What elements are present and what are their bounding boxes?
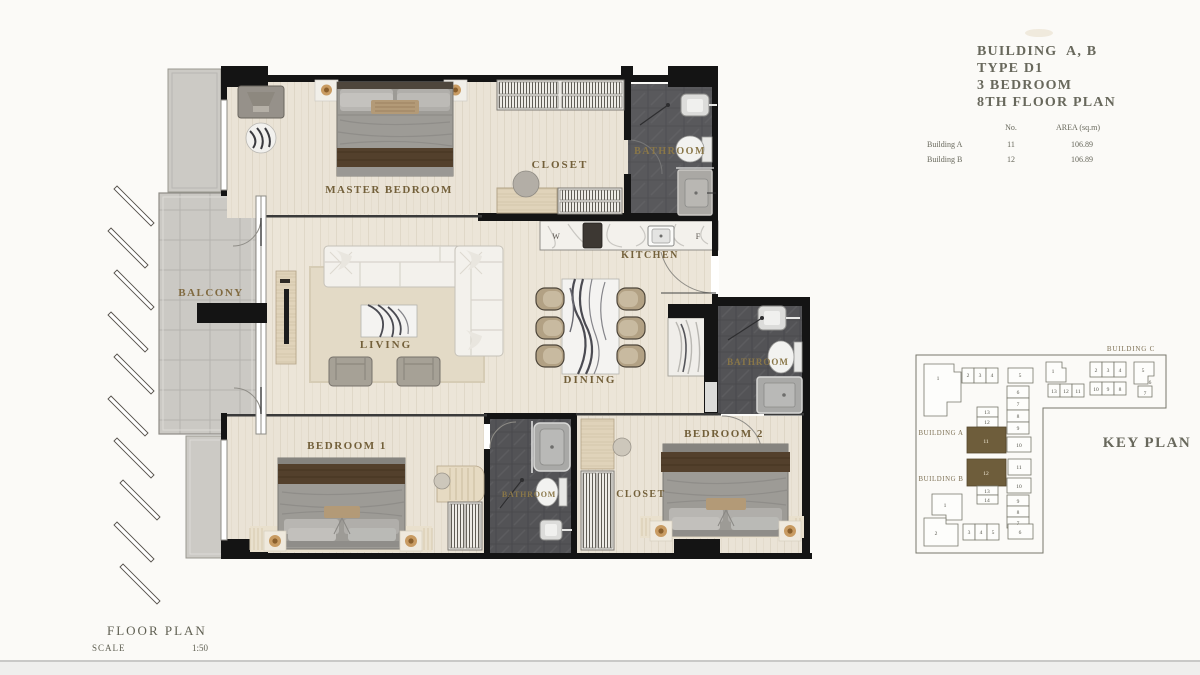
svg-text:CLOSET: CLOSET bbox=[532, 159, 589, 171]
svg-text:BATHROOM: BATHROOM bbox=[502, 490, 556, 499]
svg-text:MASTER BEDROOM: MASTER BEDROOM bbox=[325, 184, 452, 196]
svg-text:12: 12 bbox=[983, 471, 989, 477]
svg-text:TYPE D1: TYPE D1 bbox=[977, 61, 1043, 76]
svg-text:11: 11 bbox=[983, 439, 989, 445]
svg-text:1: 1 bbox=[937, 376, 940, 382]
svg-text:11: 11 bbox=[1007, 140, 1015, 149]
svg-text:6: 6 bbox=[1149, 380, 1152, 386]
svg-text:6: 6 bbox=[1017, 390, 1020, 396]
svg-text:1: 1 bbox=[1052, 369, 1055, 375]
svg-text:12: 12 bbox=[1007, 155, 1015, 164]
svg-text:14: 14 bbox=[984, 498, 990, 504]
svg-text:13: 13 bbox=[1051, 389, 1057, 395]
svg-text:F: F bbox=[696, 232, 701, 241]
svg-text:2: 2 bbox=[935, 531, 938, 537]
svg-text:7: 7 bbox=[1144, 391, 1147, 397]
svg-text:9: 9 bbox=[1107, 387, 1110, 393]
svg-text:7: 7 bbox=[1017, 402, 1020, 408]
svg-text:8: 8 bbox=[1017, 510, 1020, 516]
svg-text:BUILDING A, B: BUILDING A, B bbox=[977, 44, 1097, 59]
svg-text:BATHROOM: BATHROOM bbox=[634, 146, 706, 157]
svg-text:12: 12 bbox=[1063, 389, 1069, 395]
svg-text:11: 11 bbox=[1016, 465, 1022, 471]
svg-text:W: W bbox=[552, 232, 560, 241]
svg-text:2: 2 bbox=[967, 373, 970, 379]
svg-text:3: 3 bbox=[968, 530, 971, 536]
svg-text:Building B: Building B bbox=[927, 155, 962, 164]
svg-text:11: 11 bbox=[1075, 389, 1081, 395]
svg-text:106.89: 106.89 bbox=[1071, 140, 1093, 149]
svg-text:1:50: 1:50 bbox=[192, 643, 209, 653]
svg-text:BUILDING C: BUILDING C bbox=[1107, 345, 1155, 353]
svg-text:9: 9 bbox=[1017, 426, 1020, 432]
svg-text:3: 3 bbox=[1107, 368, 1110, 374]
svg-text:9: 9 bbox=[1017, 499, 1020, 505]
svg-text:13: 13 bbox=[984, 410, 990, 416]
svg-text:DINING: DINING bbox=[564, 374, 617, 386]
svg-text:BEDROOM 2: BEDROOM 2 bbox=[684, 428, 764, 440]
svg-text:No.: No. bbox=[1005, 123, 1017, 132]
svg-text:13: 13 bbox=[984, 489, 990, 495]
svg-text:10: 10 bbox=[1016, 443, 1022, 449]
svg-text:KEY PLAN: KEY PLAN bbox=[1103, 435, 1192, 451]
svg-text:AREA (sq.m): AREA (sq.m) bbox=[1056, 123, 1100, 132]
svg-text:4: 4 bbox=[991, 373, 994, 379]
svg-text:BALCONY: BALCONY bbox=[178, 287, 244, 299]
svg-text:8TH FLOOR PLAN: 8TH FLOOR PLAN bbox=[977, 95, 1116, 110]
svg-text:BUILDING A: BUILDING A bbox=[918, 430, 963, 437]
svg-text:12: 12 bbox=[984, 420, 990, 426]
svg-text:2: 2 bbox=[1095, 368, 1098, 374]
svg-text:7: 7 bbox=[1017, 521, 1020, 527]
svg-text:LIVING: LIVING bbox=[360, 339, 412, 351]
svg-text:5: 5 bbox=[992, 530, 995, 536]
svg-text:SCALE: SCALE bbox=[92, 643, 126, 653]
svg-text:BEDROOM 1: BEDROOM 1 bbox=[307, 440, 387, 452]
svg-text:1: 1 bbox=[944, 503, 947, 509]
svg-text:10: 10 bbox=[1016, 484, 1022, 490]
svg-text:BATHROOM: BATHROOM bbox=[727, 357, 789, 367]
svg-text:10: 10 bbox=[1093, 387, 1099, 393]
svg-text:6: 6 bbox=[1019, 530, 1022, 536]
svg-text:BUILDING B: BUILDING B bbox=[918, 476, 963, 483]
svg-text:CLOSET: CLOSET bbox=[616, 489, 666, 500]
svg-text:8: 8 bbox=[1119, 387, 1122, 393]
svg-text:4: 4 bbox=[980, 530, 983, 536]
svg-text:8: 8 bbox=[1017, 414, 1020, 420]
svg-text:KITCHEN: KITCHEN bbox=[621, 250, 679, 261]
svg-text:3 BEDROOM: 3 BEDROOM bbox=[977, 78, 1072, 93]
svg-text:5: 5 bbox=[1142, 368, 1145, 374]
svg-text:FLOOR PLAN: FLOOR PLAN bbox=[107, 623, 207, 638]
svg-text:3: 3 bbox=[979, 373, 982, 379]
svg-text:5: 5 bbox=[1019, 373, 1022, 379]
svg-text:4: 4 bbox=[1119, 368, 1122, 374]
svg-text:106.89: 106.89 bbox=[1071, 155, 1093, 164]
svg-text:Building A: Building A bbox=[927, 140, 963, 149]
